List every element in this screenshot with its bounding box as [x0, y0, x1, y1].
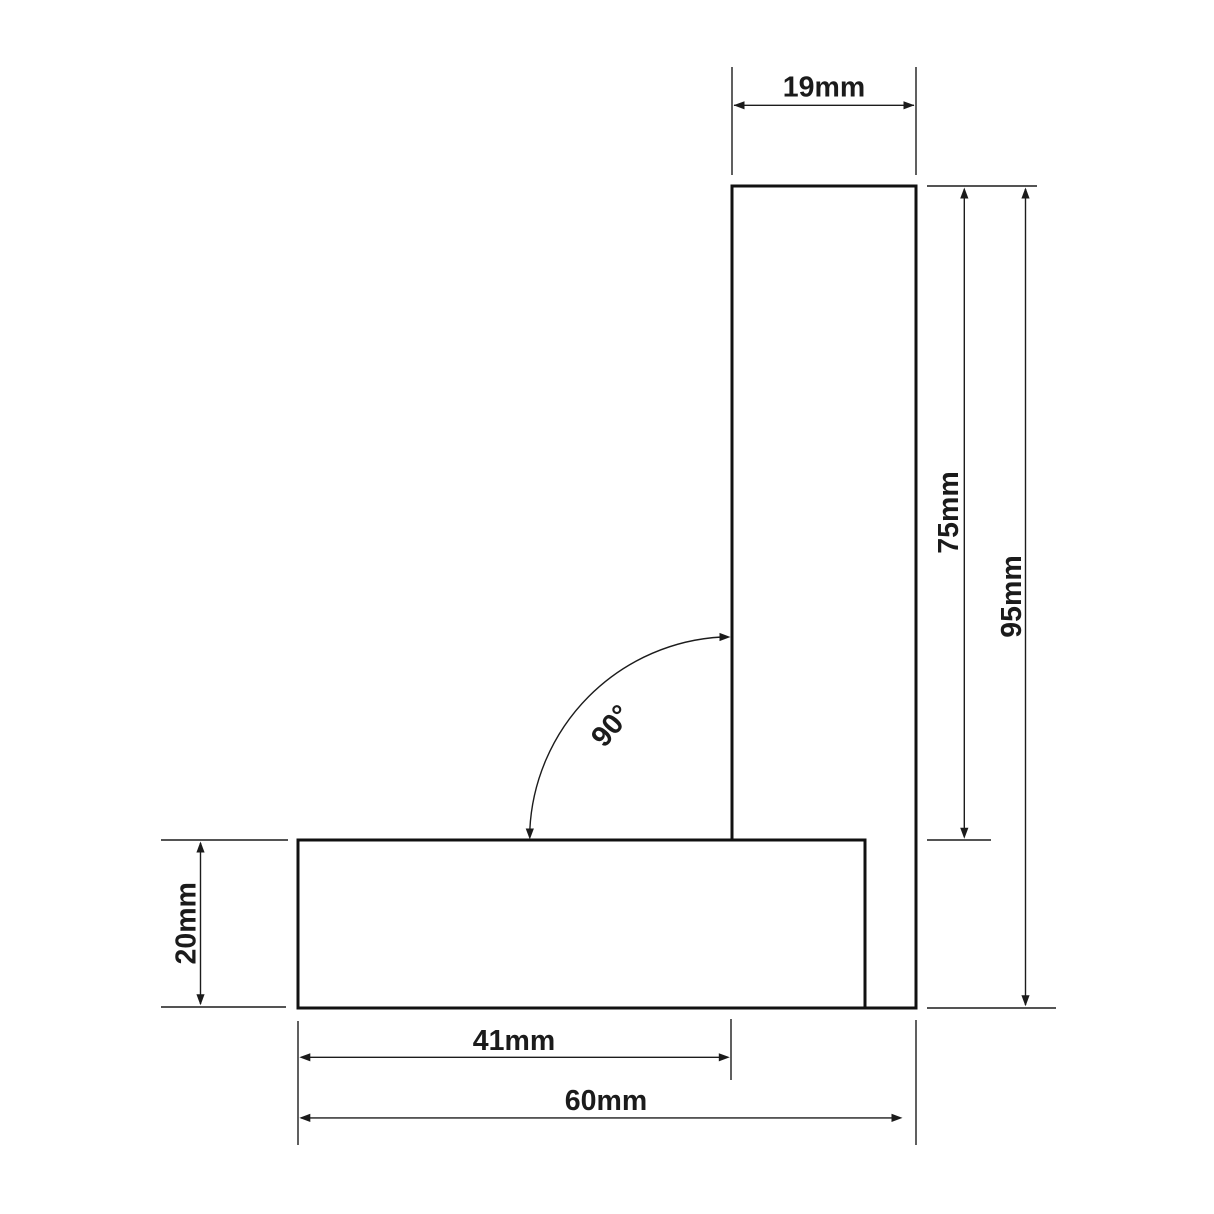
svg-text:60mm: 60mm	[565, 1085, 647, 1117]
svg-text:19mm: 19mm	[783, 72, 865, 104]
svg-text:20mm: 20mm	[171, 882, 203, 964]
svg-text:95mm: 95mm	[996, 555, 1028, 637]
svg-text:41mm: 41mm	[473, 1025, 555, 1057]
svg-text:75mm: 75mm	[933, 471, 965, 553]
